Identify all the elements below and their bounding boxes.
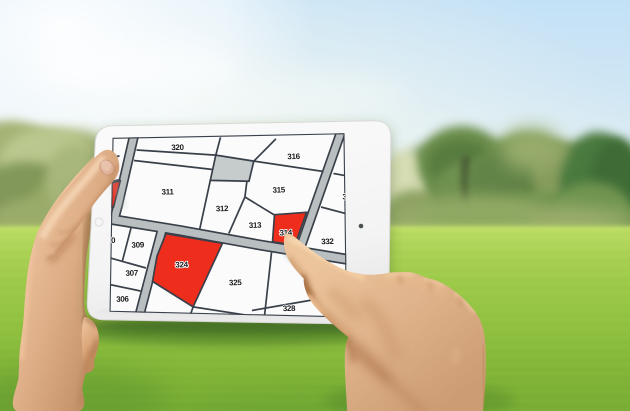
- svg-text:328: 328: [283, 304, 297, 313]
- svg-text:307: 307: [125, 269, 139, 278]
- svg-text:312: 312: [216, 204, 230, 213]
- svg-text:316: 316: [287, 152, 301, 161]
- svg-text:313: 313: [249, 221, 263, 230]
- svg-text:320: 320: [171, 143, 185, 152]
- svg-text:306: 306: [116, 295, 130, 304]
- svg-text:315: 315: [272, 185, 286, 194]
- svg-text:311: 311: [161, 187, 174, 196]
- svg-text:309: 309: [131, 240, 145, 249]
- svg-text:325: 325: [229, 278, 243, 287]
- svg-text:324: 324: [175, 260, 189, 269]
- svg-text:332: 332: [321, 237, 335, 246]
